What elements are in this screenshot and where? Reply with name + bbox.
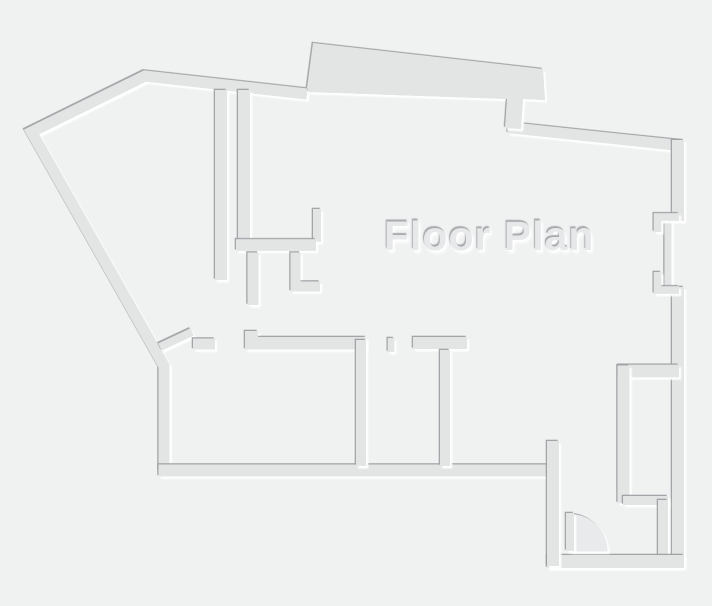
outer-wall-west — [32, 76, 308, 471]
floor-plan-canvas: Floor Plan — [0, 0, 712, 606]
door-swing-arc — [570, 514, 608, 552]
walls-group — [32, 43, 685, 566]
floor-plan-svg — [0, 0, 712, 606]
closet-l-wall — [296, 253, 321, 287]
door-leaf-room1 — [160, 332, 192, 347]
floor-plan-title: Floor Plan — [384, 213, 594, 260]
rooms-top-wall-2 — [245, 331, 366, 350]
top-thick-wall — [307, 43, 545, 129]
upper-right-wall — [508, 128, 680, 146]
